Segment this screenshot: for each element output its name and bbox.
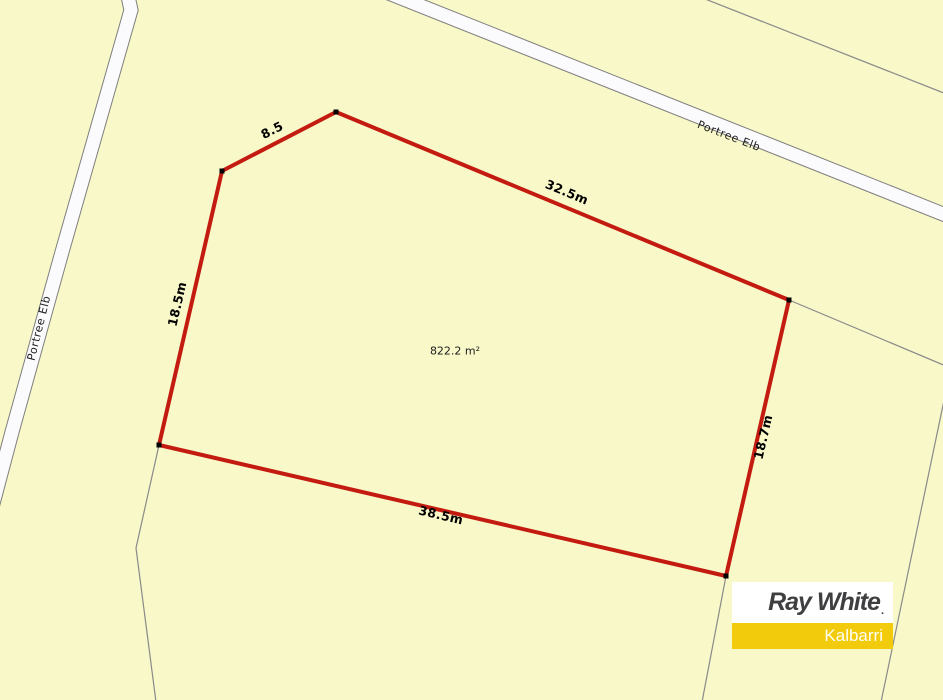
lot-area-label: 822.2 m²: [430, 345, 480, 358]
cadastral-line-bottom-left: [136, 445, 159, 700]
lot-corner-marker: [787, 298, 792, 303]
cadastral-line-below-lot: [702, 576, 726, 700]
cadastral-line-top-right: [700, 0, 943, 97]
logo-office-text: Kalbarri: [824, 626, 883, 646]
lot-corner-marker: [157, 443, 162, 448]
cadastral-line-right-lower: [881, 386, 943, 700]
lot-corner-marker: [724, 574, 729, 579]
lot-corner-marker: [334, 110, 339, 115]
logo-brand-panel: Ray White.: [732, 582, 893, 623]
logo-office-panel: Kalbarri: [732, 623, 893, 649]
map-canvas: Portree Elb Portree Elb 8.5 32.5m 18.5m …: [0, 0, 943, 700]
logo-brand-text: Ray White: [768, 588, 880, 617]
ray-white-logo: Ray White. Kalbarri: [732, 582, 893, 649]
logo-trademark-mark: .: [881, 605, 884, 617]
cadastral-line-east-corner: [789, 300, 943, 369]
lot-corner-marker: [220, 169, 225, 174]
